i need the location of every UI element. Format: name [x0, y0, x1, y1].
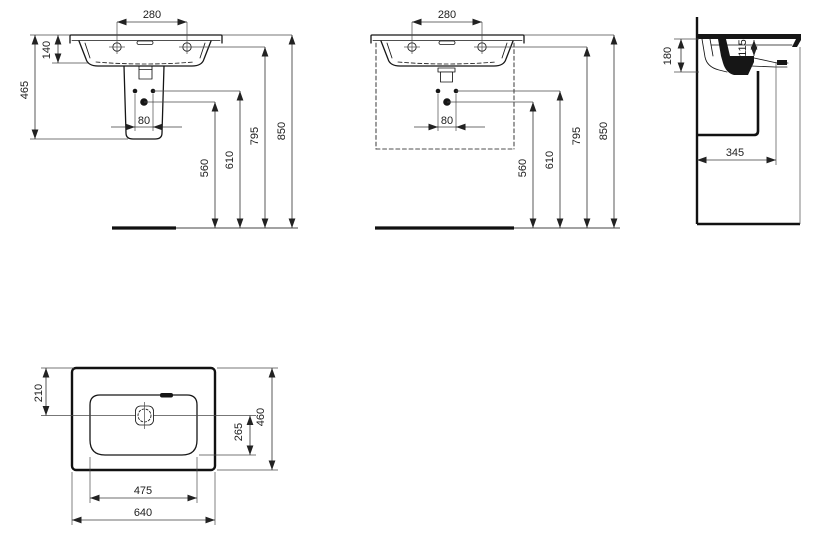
dim-label-795: 795 [571, 127, 583, 145]
dim-210: 210 [33, 368, 74, 416]
dim-label-140: 140 [41, 41, 53, 59]
dim-label-560: 560 [199, 159, 211, 177]
dim-label-850: 850 [598, 122, 610, 140]
dim-label-345: 345 [726, 147, 744, 159]
dim-180: 180 [662, 39, 699, 72]
dim-label-610: 610 [224, 151, 236, 169]
dim-850: 850 [524, 35, 614, 228]
dim-560: 560 [447, 102, 533, 228]
dim-label-465: 465 [19, 81, 31, 99]
dim-label-460: 460 [255, 408, 267, 426]
dim-795: 795 [474, 47, 587, 228]
technical-drawing-canvas: 280 140 465 80 560 [0, 0, 829, 549]
dim-610: 610 [153, 91, 240, 228]
rim-section [697, 34, 801, 39]
front-view-semi-pedestal: 280 140 465 80 560 [19, 9, 298, 228]
front-view-furniture: 280 80 560 610 795 [371, 9, 620, 228]
dim-label-210: 210 [33, 384, 45, 402]
side-section-view: 115 180 345 [662, 17, 801, 224]
semi-pedestal-profile [698, 71, 758, 135]
dim-label-280: 280 [438, 9, 456, 21]
dim-345: 345 [697, 62, 776, 165]
dim-140: 140 [41, 35, 88, 63]
fixing-hole-left [436, 89, 441, 94]
dim-label-475: 475 [134, 485, 152, 497]
trap-outline [438, 68, 455, 82]
dim-label-850: 850 [276, 122, 288, 140]
dim-label-610: 610 [544, 151, 556, 169]
dim-115: 115 [737, 39, 754, 57]
dim-label-560: 560 [517, 159, 529, 177]
dim-795: 795 [179, 47, 265, 228]
dim-640: 640 [72, 472, 215, 525]
washbasin-drawing: 280 140 465 80 560 [0, 0, 829, 549]
plan-view: 210 265 460 475 640 [33, 368, 278, 525]
overflow-slot [160, 393, 173, 398]
dim-label-115: 115 [737, 39, 749, 57]
trap-outline [139, 66, 152, 79]
dim-label-640: 640 [134, 507, 152, 519]
dim-label-265: 265 [233, 423, 245, 441]
dim-label-180: 180 [662, 47, 674, 65]
dim-610: 610 [456, 91, 560, 228]
dim-label-795: 795 [249, 127, 261, 145]
front-underside-tick [777, 60, 787, 65]
bowl-rear-wall-section [718, 39, 730, 56]
dim-label-80: 80 [441, 115, 453, 127]
dim-label-80: 80 [138, 115, 150, 127]
fixing-hole-left [133, 89, 138, 94]
dim-label-280: 280 [143, 9, 161, 21]
